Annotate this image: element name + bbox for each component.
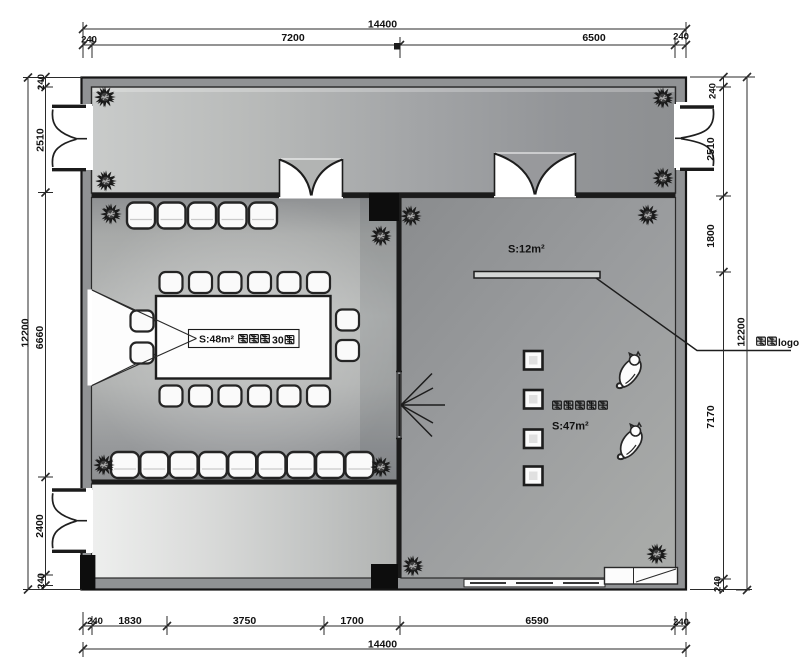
svg-text:2400: 2400: [34, 514, 46, 538]
svg-text:1700: 1700: [340, 615, 364, 627]
svg-text:2510: 2510: [34, 128, 46, 152]
svg-text:2510: 2510: [705, 137, 717, 161]
svg-text:240: 240: [36, 573, 47, 589]
svg-text:30: 30: [272, 335, 284, 347]
svg-text:240: 240: [87, 616, 103, 627]
svg-text:1830: 1830: [118, 615, 142, 627]
svg-text:S:48m²: S:48m²: [199, 334, 235, 346]
svg-text:S:12m²: S:12m²: [508, 244, 545, 256]
svg-text:12200: 12200: [19, 318, 31, 347]
svg-text:7170: 7170: [705, 405, 717, 429]
svg-text:240: 240: [708, 83, 719, 99]
svg-text:240: 240: [673, 617, 689, 628]
svg-text:7200: 7200: [281, 32, 305, 44]
svg-text:6500: 6500: [582, 32, 606, 44]
svg-text:14400: 14400: [368, 19, 397, 31]
svg-text:12200: 12200: [735, 317, 747, 346]
svg-text:1800: 1800: [705, 224, 717, 248]
svg-text:S:47m²: S:47m²: [552, 421, 589, 433]
svg-text:240: 240: [673, 32, 689, 43]
svg-text:240: 240: [36, 74, 47, 90]
svg-text:14400: 14400: [368, 639, 397, 651]
svg-text:3750: 3750: [233, 615, 257, 627]
svg-text:6590: 6590: [525, 615, 549, 627]
svg-text:6660: 6660: [34, 326, 46, 350]
svg-text:240: 240: [81, 35, 97, 46]
svg-text:240: 240: [713, 576, 724, 592]
svg-text:logo: logo: [778, 338, 799, 349]
